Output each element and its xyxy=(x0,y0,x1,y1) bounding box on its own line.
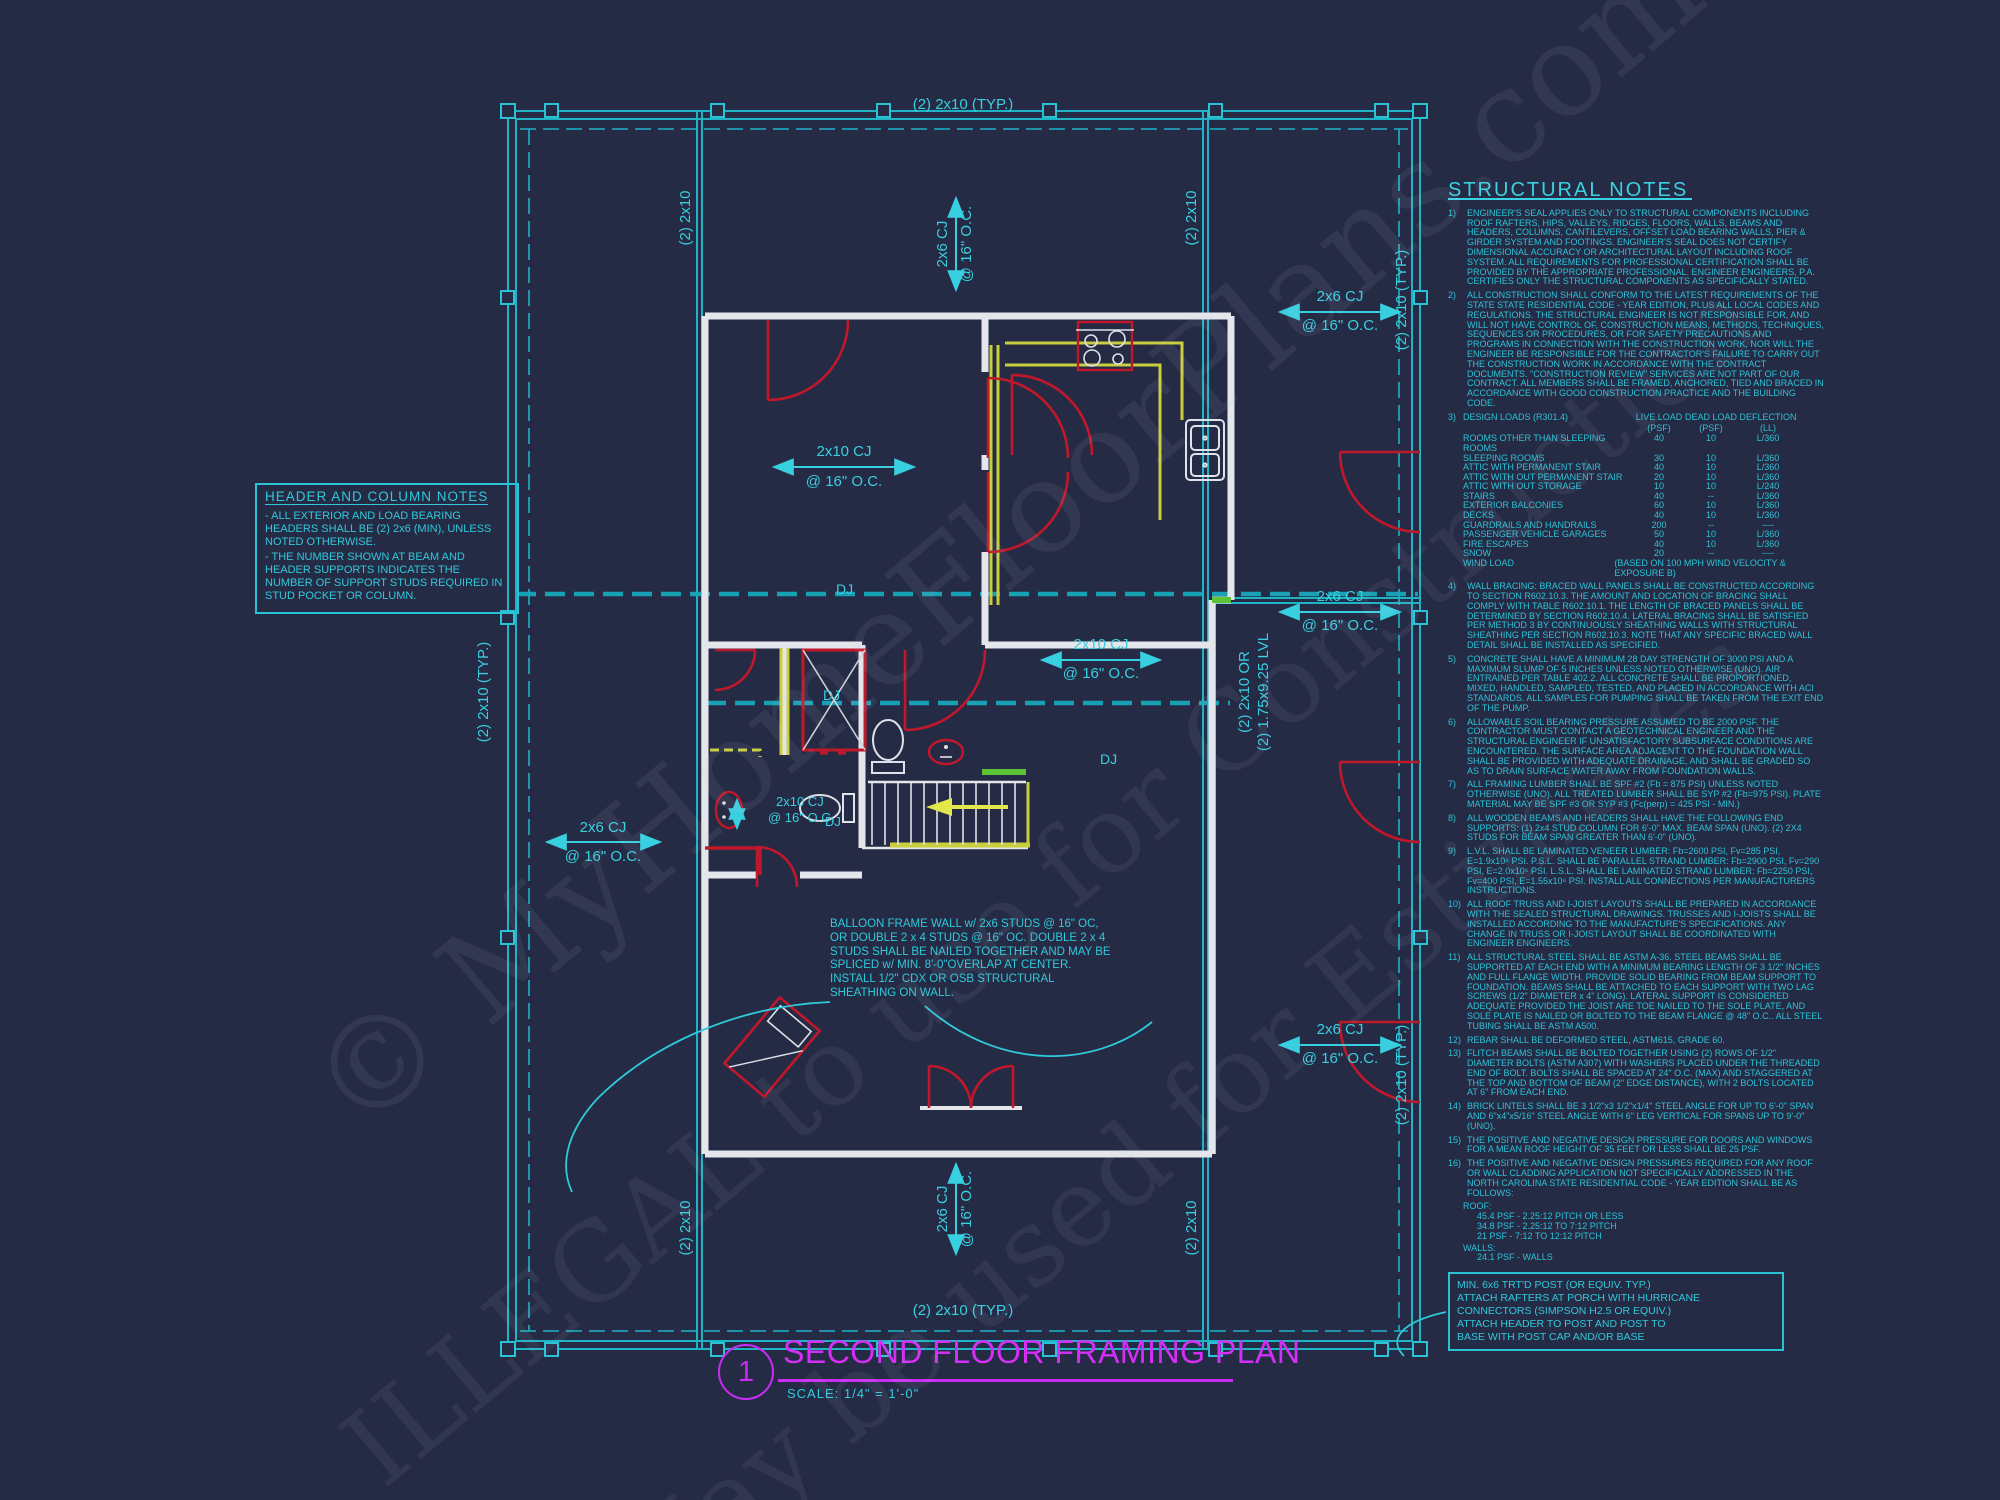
post-note-line: MIN. 6x6 TRT'D POST (OR EQUIV. TYP.) xyxy=(1457,1279,1775,1292)
dj-label: DJ xyxy=(823,687,840,703)
framing-plan-sheet: (2) 2x10 (TYP.) (2) 2x10 (TYP.) 2x6 CJ @… xyxy=(0,0,2000,1500)
bay-fixture xyxy=(724,997,819,1096)
dj-label: DJ xyxy=(836,581,853,597)
dimension-label: (2) 2x10 OR xyxy=(1236,651,1253,733)
dimension-label: @ 16" O.C. xyxy=(1063,665,1139,682)
dimension-label: (2) 2x10 xyxy=(677,190,694,245)
header-column-note: - ALL EXTERIOR AND LOAD BEARING HEADERS … xyxy=(265,510,509,549)
dimension-label: (2) 2x10 (TYP.) xyxy=(913,1302,1014,1319)
beam-lines xyxy=(516,594,1418,703)
wall-pressure-line: 24.1 PSF - WALLS xyxy=(1477,1253,1824,1263)
wall-pressures-list: 24.1 PSF - WALLS xyxy=(1463,1253,1824,1263)
dimension-label: 2x6 CJ xyxy=(934,1186,951,1233)
header-column-note: - THE NUMBER SHOWN AT BEAM AND HEADER SU… xyxy=(265,551,509,603)
stair-walls xyxy=(862,782,1028,848)
structural-note: 10) ALL ROOF TRUSS AND I-JOIST LAYOUTS S… xyxy=(1448,900,1824,949)
structural-notes-list-b: 4) WALL BRACING: BRACED WALL PANELS SHAL… xyxy=(1448,582,1824,1198)
structural-notes-panel: STRUCTURAL NOTES 1) ENGINEER'S SEAL APPL… xyxy=(1448,186,1824,1267)
wind-load-note: (BASED ON 100 MPH WIND VELOCITY & EXPOSU… xyxy=(1614,559,1824,578)
design-loads-intro: DESIGN LOADS (R301.4) xyxy=(1463,413,1633,423)
balloon-frame-note: BALLOON FRAME WALL w/ 2x6 STUDS @ 16" OC… xyxy=(830,918,1112,1001)
header-column-notes-box: HEADER AND COLUMN NOTES - ALL EXTERIOR A… xyxy=(255,483,519,614)
structural-note: 15) THE POSITIVE AND NEGATIVE DESIGN PRE… xyxy=(1448,1136,1824,1156)
design-pressures: ROOF: 45.4 PSF - 2.25:12 PITCH OR LESS34… xyxy=(1463,1202,1824,1263)
post-note-line: ATTACH HEADER TO POST AND POST TO xyxy=(1457,1318,1775,1331)
dimension-label: 2x10 CJ xyxy=(776,794,824,809)
dimension-label: @ 16" O.C. xyxy=(806,473,882,490)
structural-note: 8) ALL WOODEN BEAMS AND HEADERS SHALL HA… xyxy=(1448,814,1824,843)
post-note-line: CONNECTORS (SIMPSON H2.5 OR EQUIV.) xyxy=(1457,1305,1775,1318)
dimension-label: @ 16" O.C. xyxy=(565,848,641,865)
detail-number: 1 xyxy=(738,1356,754,1389)
design-load-row: ROOMS OTHER THAN SLEEPING ROOMS 40 10 L/… xyxy=(1463,434,1824,453)
dimension-label: 2x6 CJ xyxy=(934,221,951,268)
dimension-label: 2x6 CJ xyxy=(580,819,627,836)
structural-note: 4) WALL BRACING: BRACED WALL PANELS SHAL… xyxy=(1448,582,1824,651)
structural-note: 12) REBAR SHALL BE DEFORMED STEEL, ASTM6… xyxy=(1448,1036,1824,1046)
deck-posts xyxy=(501,104,1427,1356)
header-column-notes-list: - ALL EXTERIOR AND LOAD BEARING HEADERS … xyxy=(265,510,509,603)
structural-notes-title: STRUCTURAL NOTES xyxy=(1448,186,1692,200)
dimension-label: (2) 2x10 (TYP.) xyxy=(1393,250,1410,351)
dimension-label: 2x10 CJ xyxy=(816,443,871,460)
kitchen-sink-fixture xyxy=(1186,420,1224,480)
post-note-line: ATTACH RAFTERS AT PORCH WITH HURRICANE xyxy=(1457,1292,1775,1305)
stair xyxy=(872,782,1015,845)
title-underline xyxy=(778,1379,1233,1382)
structural-note: 9) L.V.L. SHALL BE LAMINATED VENEER LUMB… xyxy=(1448,847,1824,896)
green-beam-marks xyxy=(982,600,1231,772)
dimension-label: (2) 2x10 xyxy=(677,1200,694,1255)
dimension-label: @ 16" O.C. xyxy=(958,206,975,282)
col-live-load: LIVE LOAD xyxy=(1633,413,1685,423)
col-deflection: DEFLECTION xyxy=(1737,413,1799,423)
structural-note: 14) BRICK LINTELS SHALL BE 3 1/2"x3 1/2"… xyxy=(1448,1102,1824,1131)
dimension-label: @ 16" O.C. xyxy=(958,1171,975,1247)
dimension-label: (2) 1.75x9.25 LVL xyxy=(1255,633,1272,751)
dj-label: DJ xyxy=(1100,751,1117,767)
dimension-label: (2) 2x10 xyxy=(1183,190,1200,245)
roof-pressures-list: 45.4 PSF - 2.25:12 PITCH OR LESS34.8 PSF… xyxy=(1463,1212,1824,1241)
dimension-label: 2x6 CJ xyxy=(1317,288,1364,305)
stair-arrow-icon xyxy=(926,798,952,816)
design-loads-table: 3) DESIGN LOADS (R301.4) LIVE LOAD DEAD … xyxy=(1448,413,1824,579)
dimension-label: (2) 2x10 (TYP.) xyxy=(1393,1025,1410,1126)
sheet-title: SECOND FLOOR FRAMING PLAN xyxy=(783,1334,1300,1371)
structural-note: 13) FLITCH BEAMS SHALL BE BOLTED TOGETHE… xyxy=(1448,1049,1824,1098)
dimension-label: @ 16" O.C. xyxy=(1302,1050,1378,1067)
post-note-line: BASE WITH POST CAP AND/OR BASE xyxy=(1457,1331,1775,1344)
wind-load-label: WIND LOAD xyxy=(1463,559,1614,578)
dimension-label: @ 16" O.C. xyxy=(1302,617,1378,634)
design-loads-rows: ROOMS OTHER THAN SLEEPING ROOMS 40 10 L/… xyxy=(1463,434,1824,559)
dimension-label: @ 16" O.C. xyxy=(1302,317,1378,334)
structural-notes-list-a: 1) ENGINEER'S SEAL APPLIES ONLY TO STRUC… xyxy=(1448,209,1824,409)
stove-fixture xyxy=(1076,322,1134,370)
structural-note: 7) ALL FRAMING LUMBER SHALL BE SPF #2 (F… xyxy=(1448,780,1824,809)
dimension-label: (2) 2x10 (TYP.) xyxy=(475,642,492,743)
walls xyxy=(705,316,1231,1154)
structural-note: 5) CONCRETE SHALL HAVE A MINIMUM 28 DAY … xyxy=(1448,655,1824,714)
dimension-label: (2) 2x10 (TYP.) xyxy=(913,96,1014,113)
post-note-box: MIN. 6x6 TRT'D POST (OR EQUIV. TYP.)ATTA… xyxy=(1448,1272,1784,1351)
structural-note: 16) THE POSITIVE AND NEGATIVE DESIGN PRE… xyxy=(1448,1159,1824,1198)
structural-note: 11) ALL STRUCTURAL STEEL SHALL BE ASTM A… xyxy=(1448,953,1824,1031)
structural-note: 6) ALLOWABLE SOIL BEARING PRESSURE ASSUM… xyxy=(1448,718,1824,777)
col-dead-load: DEAD LOAD xyxy=(1685,413,1737,423)
header-column-notes-title: HEADER AND COLUMN NOTES xyxy=(265,490,488,505)
detail-number-bubble: 1 xyxy=(718,1344,774,1400)
dj-label: DJ xyxy=(825,814,841,829)
scale-label: SCALE: 1/4" = 1'-0" xyxy=(787,1386,919,1401)
deck-border xyxy=(508,111,1420,1349)
structural-note: 2) ALL CONSTRUCTION SHALL CONFORM TO THE… xyxy=(1448,291,1824,409)
dimension-label: 2x10 CJ xyxy=(1073,636,1128,653)
dimension-label: 2x6 CJ xyxy=(1317,588,1364,605)
roof-pressure-line: 21 PSF - 7:12 TO 12:12 PITCH xyxy=(1477,1232,1824,1242)
dimension-label: 2x6 CJ xyxy=(1317,1021,1364,1038)
structural-note: 1) ENGINEER'S SEAL APPLIES ONLY TO STRUC… xyxy=(1448,209,1824,287)
dimension-label: (2) 2x10 xyxy=(1183,1200,1200,1255)
